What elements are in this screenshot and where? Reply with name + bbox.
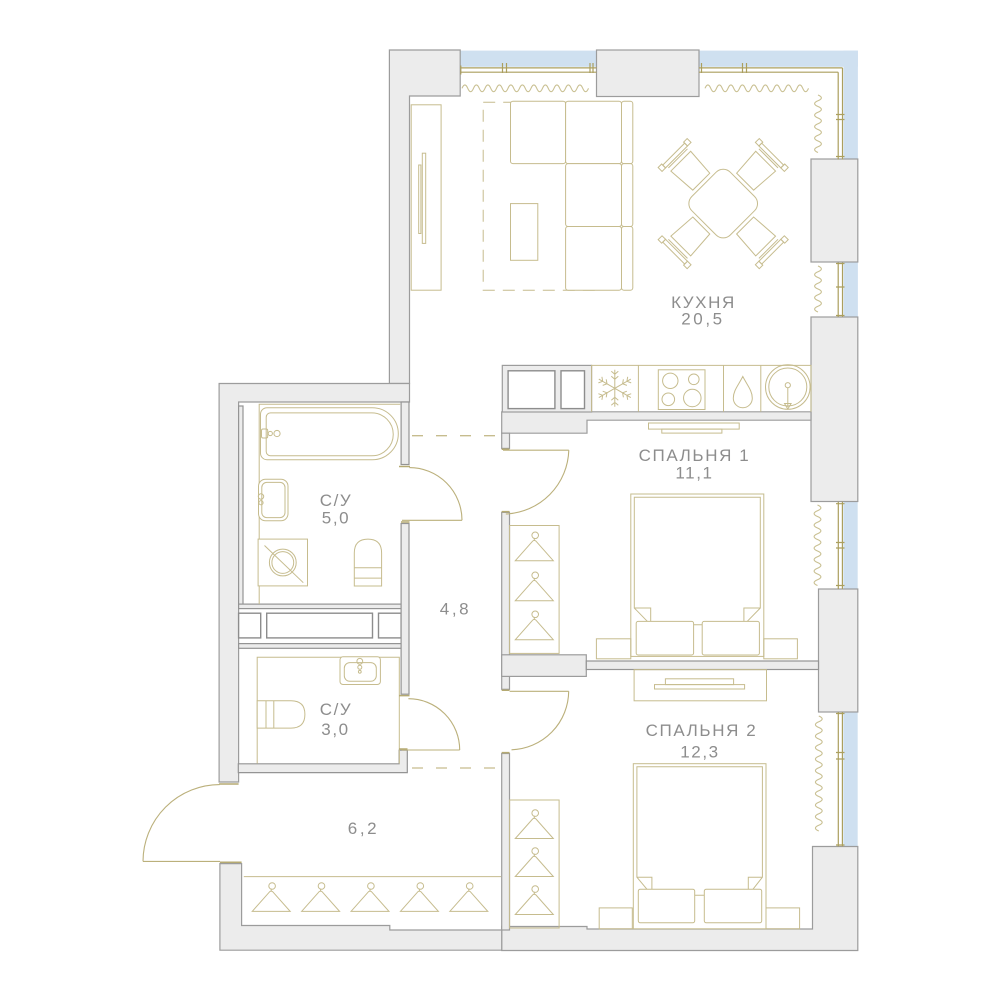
svg-text:СПАЛЬНЯ 2: СПАЛЬНЯ 2	[646, 721, 758, 740]
svg-text:11,1: 11,1	[675, 464, 713, 483]
svg-text:6,2: 6,2	[348, 819, 379, 838]
svg-text:3,0: 3,0	[321, 720, 349, 739]
svg-text:20,5: 20,5	[681, 310, 725, 329]
svg-text:12,3: 12,3	[680, 743, 720, 762]
svg-text:4,8: 4,8	[440, 600, 471, 619]
svg-text:5,0: 5,0	[322, 509, 350, 528]
svg-text:С/У: С/У	[320, 491, 353, 510]
svg-text:С/У: С/У	[320, 700, 353, 719]
svg-text:СПАЛЬНЯ 1: СПАЛЬНЯ 1	[639, 446, 751, 465]
